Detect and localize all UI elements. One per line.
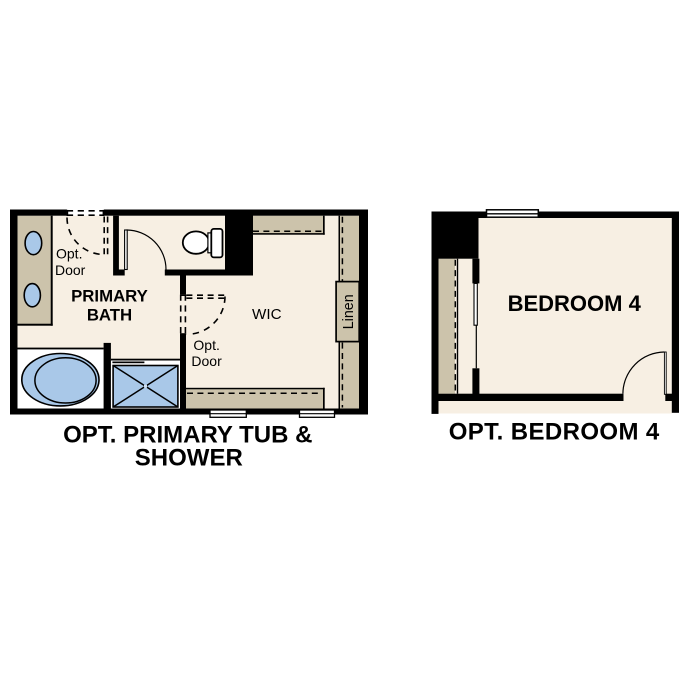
svg-text:OPT. BEDROOM 4: OPT. BEDROOM 4: [449, 419, 660, 446]
svg-text:Opt.: Opt.: [56, 246, 82, 262]
svg-text:Door: Door: [191, 353, 222, 369]
svg-text:PRIMARY: PRIMARY: [71, 286, 148, 305]
svg-text:BATH: BATH: [87, 305, 132, 324]
svg-text:Opt.: Opt.: [193, 337, 219, 353]
svg-text:BEDROOM 4: BEDROOM 4: [508, 291, 642, 316]
svg-text:Linen: Linen: [341, 294, 357, 329]
svg-text:SHOWER: SHOWER: [135, 445, 243, 472]
svg-text:WIC: WIC: [252, 306, 282, 323]
svg-text:Door: Door: [55, 262, 86, 278]
